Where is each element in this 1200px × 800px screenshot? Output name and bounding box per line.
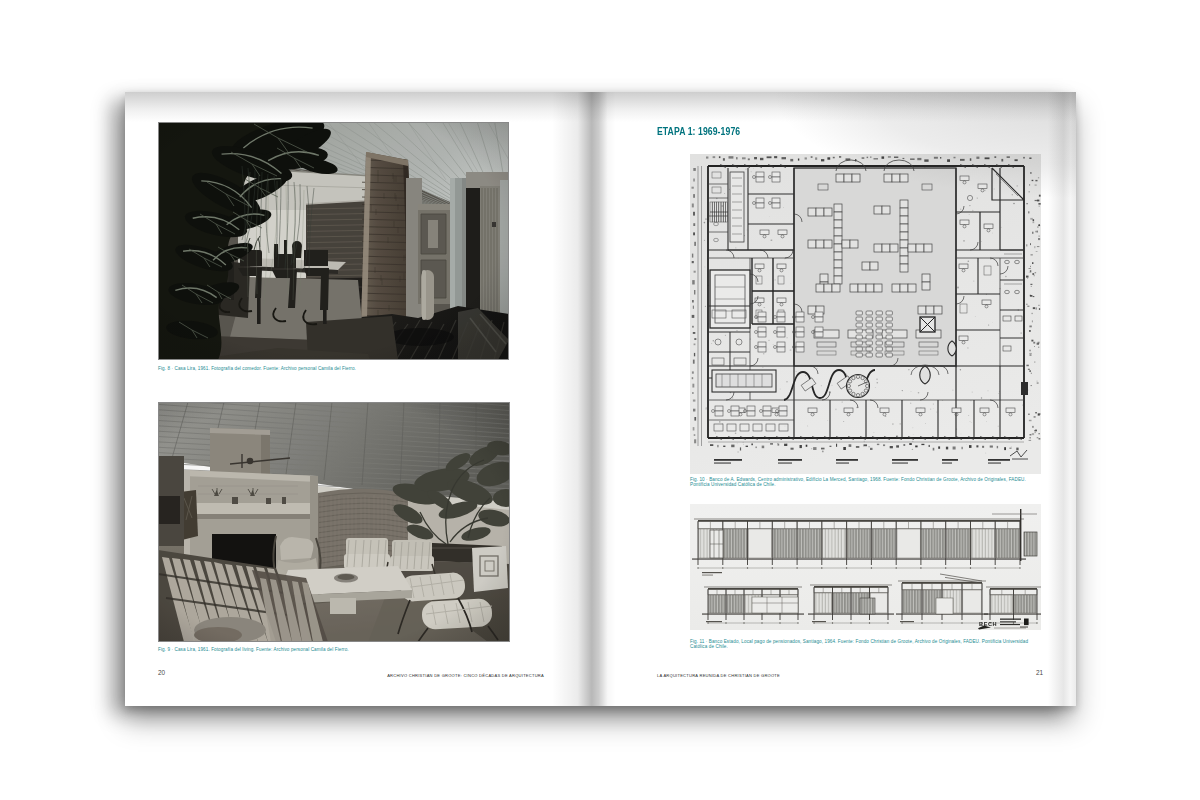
svg-text:BECH: BECH (979, 621, 997, 627)
